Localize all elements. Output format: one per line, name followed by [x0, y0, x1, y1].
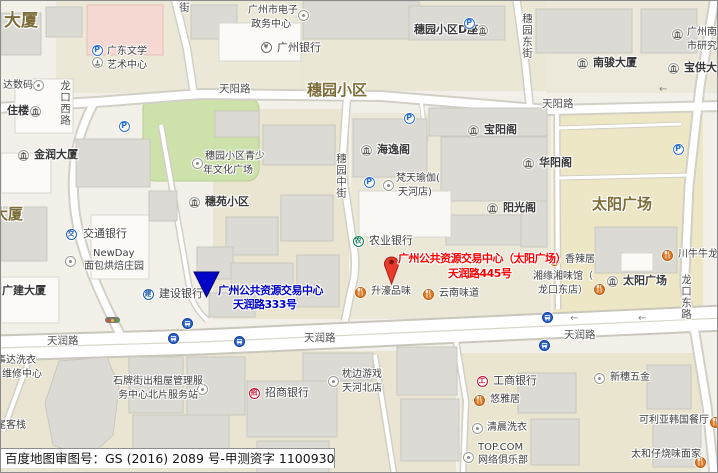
- marker-layer: 广州公共资源交易中心 天润路333号 广州公共资源交易中心（太阳广场） 天润路4…: [1, 1, 717, 472]
- red-marker-label-line1[interactable]: 广州公共资源交易中心（太阳广场）: [398, 250, 566, 266]
- blue-marker-label-line2[interactable]: 天润路333号: [233, 296, 296, 312]
- map-canvas[interactable]: 达数码住楼金润大厦广东文学艺术中心广州市电子政务中心¥广州银行穗园小区D座南骏大…: [0, 0, 718, 473]
- red-marker-label-line2[interactable]: 天润路445号: [448, 265, 511, 281]
- blue-triangle-marker[interactable]: [192, 270, 220, 299]
- attribution-text: 百度地图审图号：GS (2016) 2089 号-甲测资字 1100930: [5, 451, 335, 466]
- attribution-bar: 百度地图审图号：GS (2016) 2089 号-甲测资字 1100930: [1, 448, 335, 468]
